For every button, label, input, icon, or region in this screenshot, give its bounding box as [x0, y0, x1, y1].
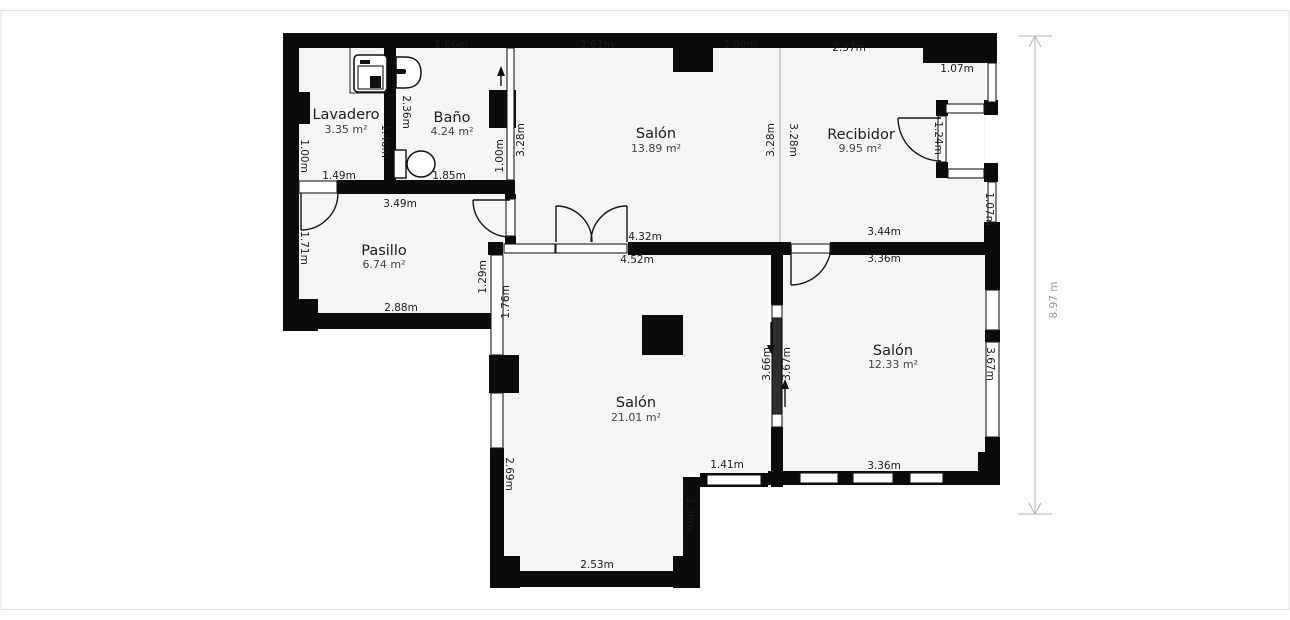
window — [948, 169, 984, 178]
wall-segment — [985, 242, 1000, 290]
room-name-label: Recibidor — [827, 127, 895, 143]
wall-segment — [984, 163, 998, 182]
dimension-label: 3.67m — [781, 347, 793, 381]
room-area-label: 12.33 m² — [868, 358, 918, 371]
thin-partition — [491, 393, 503, 448]
dimension-label: 4.32m — [628, 231, 662, 243]
dimension-label: 1.00m — [298, 139, 310, 173]
dimension-label: 1.41m — [710, 459, 744, 471]
dimension-label: 1.29m — [477, 260, 489, 294]
dimension-label: 4.52m — [620, 254, 654, 266]
dimension-label: 2.88m — [384, 302, 418, 314]
dimension-label: 1.00m — [494, 139, 506, 173]
wall-segment — [283, 180, 299, 194]
window — [772, 305, 782, 318]
dimension-label: 3.28m — [787, 123, 799, 157]
dimension-label: 1.85m — [432, 170, 466, 182]
room-area-label: 9.95 m² — [838, 142, 881, 155]
room-area-label: 13.89 m² — [631, 142, 681, 155]
door-opening — [791, 244, 830, 253]
room-area-label: 21.01 m² — [611, 411, 661, 424]
dimension-label: 2.36m — [400, 95, 412, 129]
dimension-label: 3.28m — [765, 123, 777, 157]
window — [910, 473, 943, 483]
dimension-label: 1.46m — [379, 124, 391, 158]
wall-segment — [985, 330, 1000, 342]
dimension-label: 3.28m — [515, 123, 527, 157]
window — [504, 244, 555, 253]
wall-segment — [923, 33, 997, 63]
dimension-label: 3.67m — [984, 347, 996, 381]
wall-pillar — [673, 33, 713, 72]
room-area-label: 3.35 m² — [324, 123, 367, 136]
wall-corner — [673, 556, 700, 588]
wall-segment — [488, 242, 503, 255]
window — [772, 414, 782, 427]
washing-machine-icon — [354, 55, 387, 92]
wall-segment — [490, 448, 504, 572]
exterior-notch — [947, 113, 984, 169]
wall-pillar — [283, 92, 310, 124]
wall-segment — [283, 313, 492, 329]
dimension-label: 1.38m — [684, 497, 696, 531]
wall-segment — [771, 242, 783, 305]
door-opening — [299, 181, 337, 193]
dimension-label: 3.36m — [867, 460, 901, 472]
wall-corner — [978, 452, 1000, 485]
overall-height-label: 8.97 m — [1048, 282, 1060, 319]
window — [853, 473, 893, 483]
dimension-label: 1.86m — [434, 39, 468, 51]
room-name-label: Baño — [434, 110, 471, 126]
wall-segment — [936, 162, 948, 178]
dimension-label: 1.07m — [940, 63, 974, 75]
room-name-label: Pasillo — [361, 243, 407, 259]
wall-segment — [985, 437, 1000, 453]
dimension-label: 1.24m — [932, 121, 944, 155]
floor-plan-svg: Lavadero Baño Salón Recibidor Pasillo Sa… — [0, 0, 1290, 620]
dimension-label: 3.66m — [761, 347, 773, 381]
dimension-label: 2.61m — [580, 39, 614, 51]
dimension-label: 3.36m — [867, 253, 901, 265]
room-divider-line — [779, 48, 781, 243]
dimension-label: 3.44m — [867, 226, 901, 238]
dimension-label: 2.69m — [503, 457, 515, 491]
wall-pillar — [489, 355, 519, 393]
sink-icon — [395, 57, 421, 88]
room-name-label: Lavadero — [312, 107, 379, 123]
dimension-label: 1.71m — [298, 231, 310, 265]
overall-dimension-line — [1018, 36, 1052, 514]
door-opening — [506, 199, 515, 236]
dimension-label: 1.76m — [500, 285, 512, 319]
dimension-label: 3.49m — [383, 198, 417, 210]
column — [642, 315, 683, 355]
dimension-label: 1.49m — [322, 170, 356, 182]
room-name-label: Salón — [616, 395, 656, 411]
window — [986, 290, 999, 330]
door-opening — [556, 244, 627, 253]
dimension-label: 2.53m — [580, 559, 614, 571]
wall-segment — [505, 194, 516, 199]
dimension-label: 1.07m — [983, 192, 995, 226]
floor-plan-page: Lavadero Baño Salón Recibidor Pasillo Sa… — [0, 0, 1290, 620]
window — [946, 104, 984, 113]
window — [800, 473, 838, 483]
wall-segment — [490, 571, 700, 587]
window — [707, 475, 761, 485]
dimension-label: 2.37m — [832, 42, 866, 54]
toilet-icon — [394, 150, 435, 178]
room-name-label: Salón — [873, 343, 913, 359]
dimension-label: 1.08m — [723, 39, 757, 51]
window — [988, 63, 996, 102]
thin-partition — [507, 48, 514, 180]
room-area-label: 6.74 m² — [362, 258, 405, 271]
wall-segment — [830, 242, 986, 255]
room-area-label: 4.24 m² — [430, 125, 473, 138]
room-name-label: Salón — [636, 126, 676, 142]
wall-segment — [337, 180, 515, 194]
